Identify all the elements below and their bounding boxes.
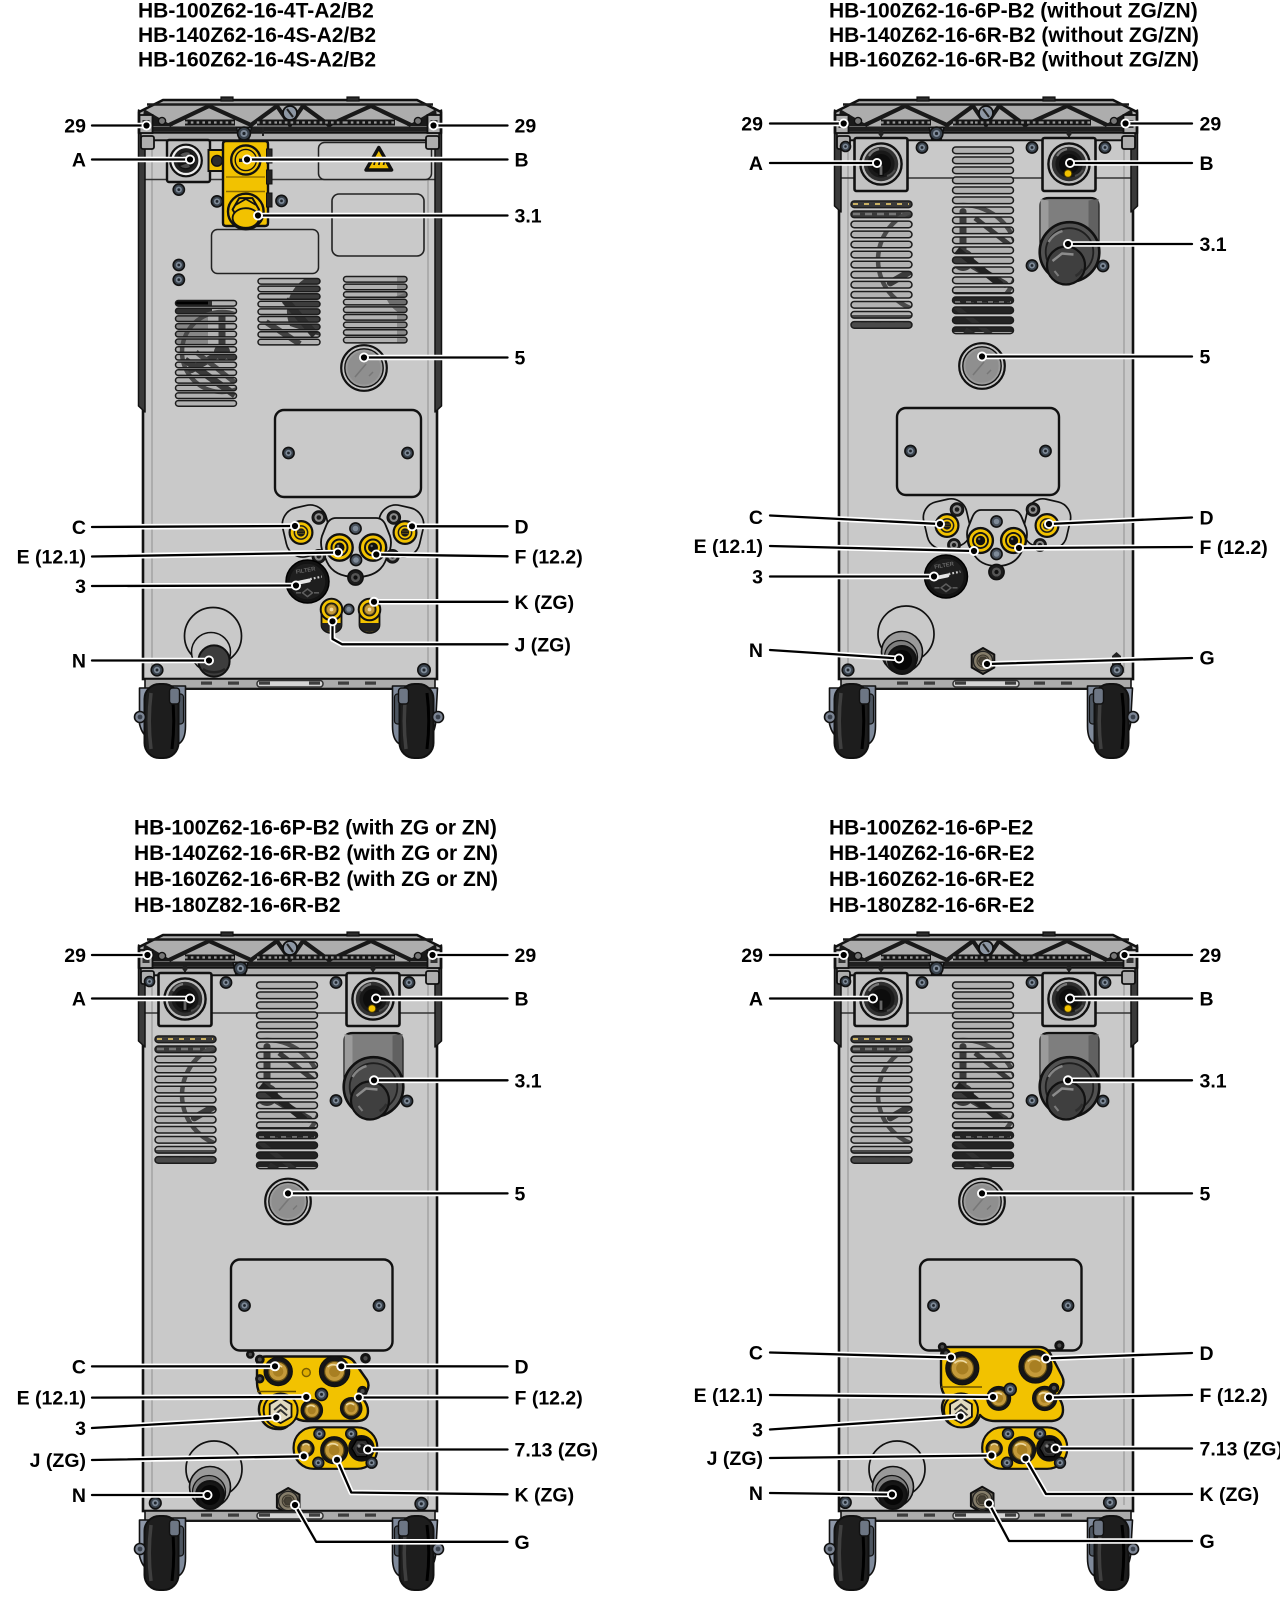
svg-text:F (12.2): F (12.2) xyxy=(1200,1385,1268,1407)
svg-text:J (ZG): J (ZG) xyxy=(30,1450,86,1472)
svg-text:N: N xyxy=(749,1483,763,1505)
svg-text:3: 3 xyxy=(75,576,86,598)
svg-text:G: G xyxy=(1200,1531,1215,1553)
svg-text:D: D xyxy=(515,516,529,538)
svg-text:29: 29 xyxy=(515,116,537,138)
svg-text:C: C xyxy=(749,507,763,529)
svg-text:3.1: 3.1 xyxy=(515,1070,542,1092)
svg-text:C: C xyxy=(72,517,86,539)
svg-text:N: N xyxy=(72,1485,86,1507)
svg-text:5: 5 xyxy=(1200,1183,1211,1205)
svg-text:G: G xyxy=(1200,648,1215,670)
svg-text:5: 5 xyxy=(1200,347,1211,369)
svg-text:D: D xyxy=(515,1356,529,1378)
svg-text:5: 5 xyxy=(515,348,526,370)
svg-text:A: A xyxy=(72,150,86,172)
svg-text:N: N xyxy=(749,640,763,662)
svg-text:29: 29 xyxy=(741,114,763,136)
svg-text:F (12.2): F (12.2) xyxy=(515,1388,583,1410)
svg-text:B: B xyxy=(1200,153,1214,175)
svg-text:3.1: 3.1 xyxy=(1200,234,1227,256)
svg-text:29: 29 xyxy=(515,945,537,967)
svg-text:29: 29 xyxy=(1200,114,1222,136)
svg-text:E (12.1): E (12.1) xyxy=(694,536,763,558)
svg-text:K (ZG): K (ZG) xyxy=(515,1484,575,1506)
svg-text:J (ZG): J (ZG) xyxy=(515,634,571,656)
svg-text:K (ZG): K (ZG) xyxy=(1200,1484,1260,1506)
svg-text:E (12.1): E (12.1) xyxy=(17,1388,86,1410)
svg-text:29: 29 xyxy=(741,945,763,967)
svg-text:29: 29 xyxy=(64,116,86,138)
svg-text:E (12.1): E (12.1) xyxy=(17,547,86,569)
svg-text:B: B xyxy=(515,150,529,172)
svg-text:3.1: 3.1 xyxy=(1200,1070,1227,1092)
svg-text:A: A xyxy=(749,989,763,1011)
svg-text:C: C xyxy=(72,1356,86,1378)
svg-text:3: 3 xyxy=(752,567,763,589)
svg-text:D: D xyxy=(1200,1343,1214,1365)
svg-text:E (12.1): E (12.1) xyxy=(694,1385,763,1407)
svg-text:7.13 (ZG): 7.13 (ZG) xyxy=(515,1440,598,1462)
svg-text:29: 29 xyxy=(1200,945,1222,967)
svg-text:29: 29 xyxy=(64,945,86,967)
svg-text:7.13 (ZG): 7.13 (ZG) xyxy=(1200,1439,1280,1461)
svg-text:F (12.2): F (12.2) xyxy=(515,546,583,568)
svg-text:A: A xyxy=(72,989,86,1011)
svg-text:5: 5 xyxy=(515,1183,526,1205)
svg-text:HB-100Z62-16-4T-A2/B2HB-140Z62: HB-100Z62-16-4T-A2/B2HB-140Z62-16-4S-A2/… xyxy=(138,0,376,72)
svg-text:HB-100Z62-16-6P-B2 (without ZG: HB-100Z62-16-6P-B2 (without ZG/ZN)HB-140… xyxy=(829,0,1199,72)
svg-text:D: D xyxy=(1200,508,1214,530)
svg-text:G: G xyxy=(515,1532,530,1554)
svg-text:C: C xyxy=(749,1343,763,1365)
svg-text:3: 3 xyxy=(752,1420,763,1442)
svg-text:F (12.2): F (12.2) xyxy=(1200,537,1268,559)
svg-text:K (ZG): K (ZG) xyxy=(515,592,575,614)
svg-text:3.1: 3.1 xyxy=(515,206,542,228)
svg-text:A: A xyxy=(749,153,763,175)
svg-text:3: 3 xyxy=(75,1418,86,1440)
svg-text:B: B xyxy=(515,989,529,1011)
svg-text:B: B xyxy=(1200,989,1214,1011)
svg-text:J (ZG): J (ZG) xyxy=(707,1448,763,1470)
svg-text:N: N xyxy=(72,651,86,673)
